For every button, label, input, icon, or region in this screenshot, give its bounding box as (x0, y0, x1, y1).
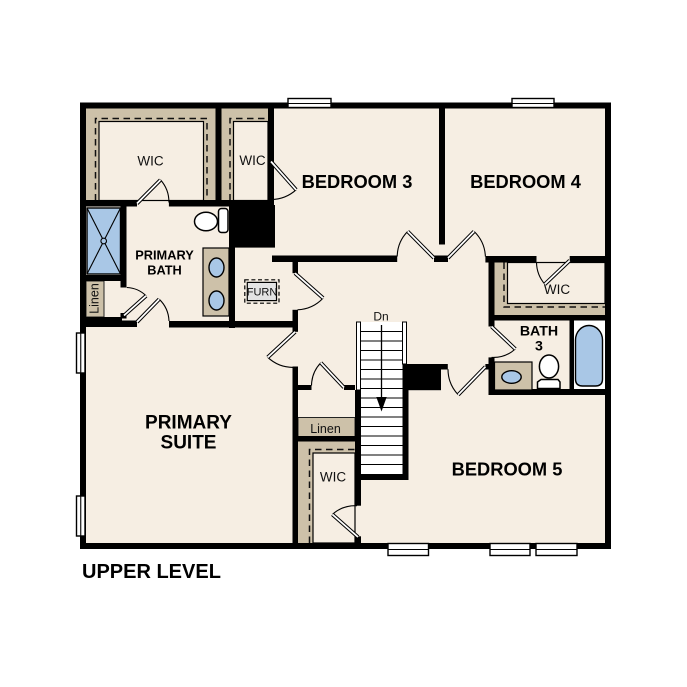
svg-text:UPPER LEVEL: UPPER LEVEL (82, 561, 221, 583)
svg-text:3: 3 (535, 339, 543, 355)
svg-text:PRIMARY: PRIMARY (135, 248, 194, 263)
svg-text:SUITE: SUITE (161, 433, 217, 454)
svg-text:WIC: WIC (137, 154, 163, 169)
svg-text:Linen: Linen (88, 283, 102, 314)
svg-text:BATH: BATH (147, 263, 182, 278)
svg-text:BEDROOM 3: BEDROOM 3 (302, 171, 413, 192)
svg-text:BEDROOM 4: BEDROOM 4 (470, 171, 582, 192)
svg-text:PRIMARY: PRIMARY (145, 413, 232, 434)
svg-text:Linen: Linen (310, 422, 341, 436)
svg-text:BATH: BATH (520, 324, 558, 340)
svg-text:WIC: WIC (239, 153, 265, 168)
svg-text:FURN: FURN (247, 287, 278, 299)
svg-text:WIC: WIC (320, 470, 346, 485)
svg-text:WIC: WIC (544, 282, 570, 297)
svg-text:BEDROOM 5: BEDROOM 5 (452, 459, 563, 480)
svg-text:Dn: Dn (373, 310, 388, 324)
